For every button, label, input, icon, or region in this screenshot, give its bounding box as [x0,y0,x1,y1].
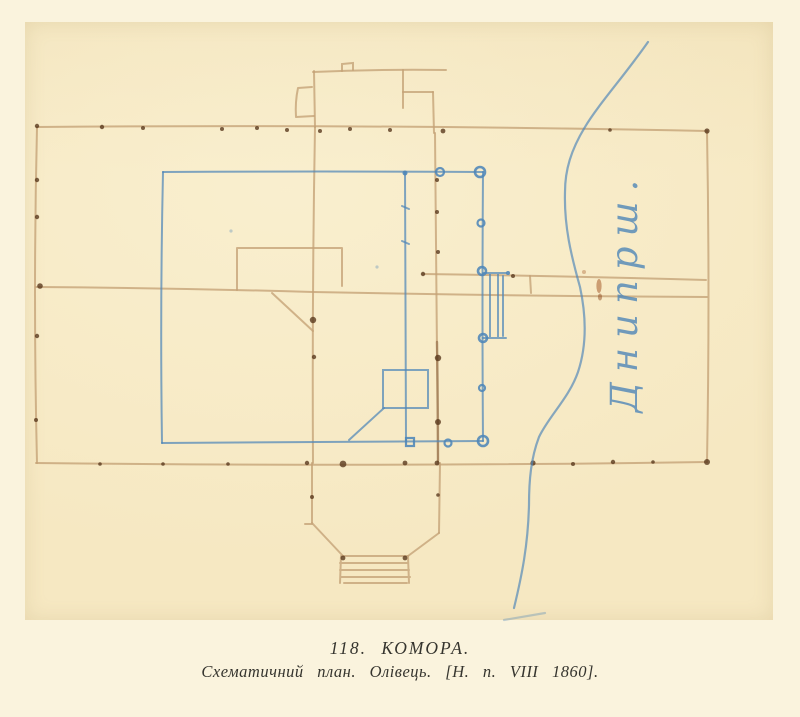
caption: 118. КОМОРА. Схематичний план. Олівець. … [0,638,800,682]
top-porch-top [313,70,446,72]
post-dot [98,462,102,466]
blue-diagonal [349,408,384,440]
post-dot [220,127,224,131]
bottom-porch-right-diagonal [408,533,439,556]
upper-horizontal-wall [423,274,706,280]
blue-mark [403,171,408,176]
post-dot [255,126,259,130]
post-dot [285,128,289,132]
post-dot [435,419,441,425]
top-porch-right [433,92,434,133]
bottom-porch-left-diagonal [312,523,343,556]
post-dot [35,178,39,182]
post-dot [571,462,575,466]
blue-plan [161,167,510,447]
post-dot [141,126,145,130]
plan-sketch-svg [0,0,800,717]
post-dot [35,124,39,128]
post-dot [37,283,43,289]
caption-title: 118. КОМОРА. [0,638,800,659]
outer-wall-top [37,126,707,131]
post-dot [435,355,441,361]
post-dot [403,556,408,561]
river-dash [504,613,545,620]
stain [598,294,602,301]
post-dot [435,210,439,214]
post-dot [340,461,347,468]
blue-door-ladder [483,273,506,338]
blue-circle [445,440,452,447]
post-dot [310,495,314,499]
post-dot [436,250,440,254]
post-dot [34,418,38,422]
post-dot [403,461,408,466]
blue-speck [229,229,232,232]
blue-rect-bottom [162,441,483,443]
blue-rect-left [161,172,163,443]
river-label: Днипрш. [603,146,657,436]
outer-wall-bottom [36,462,707,465]
outer-wall-left [35,127,37,463]
inner-box [237,248,342,290]
post-dot [310,317,316,323]
inner-diagonal [272,293,313,331]
post-dot [318,129,322,133]
bottom-porch-left [305,463,312,524]
caption-subtitle: Схематичний план. Олівець. [Н. п. VIII 1… [0,662,800,682]
post-dot [435,178,439,182]
bottom-steps [340,556,410,583]
blue-mark [506,271,510,275]
post-dot [348,127,352,131]
top-porch-box [296,87,314,117]
post-dot [435,461,440,466]
post-dot [651,460,655,464]
blue-rect-right [483,172,484,441]
stain [582,270,586,274]
bottom-porch-right [439,463,440,533]
post-dot [35,215,39,219]
post-dot [511,274,515,278]
post-dot [611,460,615,464]
post-dot [100,125,104,129]
post-dot [312,355,316,359]
wall-jog [530,276,531,293]
post-dot [421,272,425,276]
book-page: Днипрш. 118. КОМОРА. Схематичний план. О… [0,0,800,717]
post-dot [436,493,440,497]
cross-wall-left [313,127,315,463]
top-porch-left [314,71,315,127]
post-dot [161,462,165,466]
post-dot [704,128,709,133]
post-dot [305,461,309,465]
stain [596,279,601,293]
post-dot [608,128,612,132]
post-dot [704,459,710,465]
blue-circle [478,220,485,227]
blue-speck [375,265,378,268]
post-dot [441,129,446,134]
post-dot [226,462,230,466]
blue-inner-vertical [405,172,406,440]
post-dot [341,556,346,561]
post-dot [388,128,392,132]
post-dot [35,334,39,338]
